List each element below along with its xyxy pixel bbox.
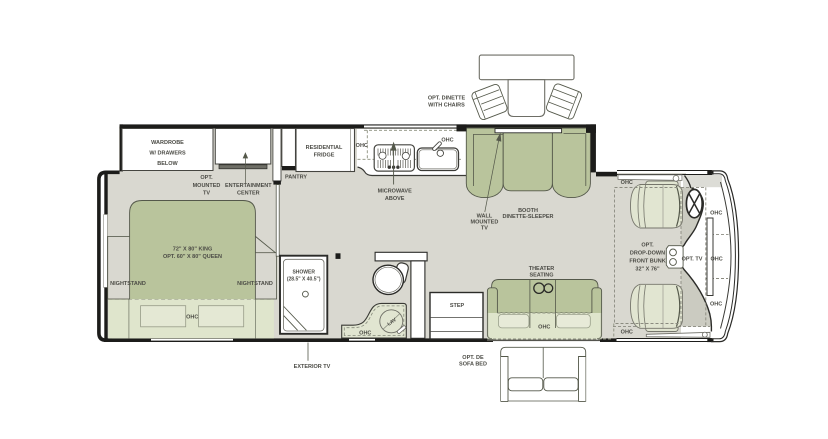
svg-text:72" X 80" KING: 72" X 80" KING <box>173 247 212 253</box>
svg-text:ENTERTAINMENT: ENTERTAINMENT <box>225 183 272 189</box>
svg-text:OPT. 60" X 80" QUEEN: OPT. 60" X 80" QUEEN <box>163 254 222 260</box>
svg-text:OHC: OHC <box>186 314 198 320</box>
svg-text:PANTRY: PANTRY <box>285 174 307 180</box>
svg-text:OHC: OHC <box>710 256 722 262</box>
svg-text:OHC: OHC <box>621 180 633 186</box>
svg-text:WITH CHAIRS: WITH CHAIRS <box>428 102 465 108</box>
svg-text:SOFA BED: SOFA BED <box>459 362 487 368</box>
svg-text:OHC: OHC <box>359 331 371 337</box>
svg-text:WARDROBE: WARDROBE <box>151 140 184 146</box>
svg-text:OHC: OHC <box>710 302 722 308</box>
svg-text:CENTER: CENTER <box>237 191 260 197</box>
svg-text:OPT. TV: OPT. TV <box>682 256 703 262</box>
svg-text:DROP-DOWN: DROP-DOWN <box>630 250 665 256</box>
svg-text:STEP: STEP <box>450 303 465 309</box>
svg-text:OHC: OHC <box>538 325 550 331</box>
svg-text:MOUNTED: MOUNTED <box>193 183 221 189</box>
svg-text:OPT.: OPT. <box>641 242 654 248</box>
svg-text:OPT.: OPT. <box>200 175 213 181</box>
svg-text:NIGHTSTAND: NIGHTSTAND <box>110 281 146 287</box>
svg-text:TV: TV <box>481 225 488 231</box>
svg-text:SEATING: SEATING <box>529 272 553 278</box>
svg-text:OHC: OHC <box>356 143 368 149</box>
svg-text:OPT. DE: OPT. DE <box>462 355 484 361</box>
svg-text:SHOWER: SHOWER <box>292 269 315 275</box>
svg-text:OHC: OHC <box>441 138 453 144</box>
svg-text:FRONT BUNK: FRONT BUNK <box>629 258 665 264</box>
svg-text:THEATER: THEATER <box>529 266 555 272</box>
svg-text:ABOVE: ABOVE <box>385 196 405 202</box>
svg-text:RESIDENTIAL: RESIDENTIAL <box>306 145 343 151</box>
svg-text:FRIDGE: FRIDGE <box>314 152 335 158</box>
svg-text:TV: TV <box>203 191 210 197</box>
svg-text:NIGHTSTAND: NIGHTSTAND <box>237 281 273 287</box>
svg-text:EXTERIOR TV: EXTERIOR TV <box>294 364 331 370</box>
svg-text:32" X 76": 32" X 76" <box>635 266 660 272</box>
svg-text:W/ DRAWERS: W/ DRAWERS <box>149 151 186 157</box>
svg-text:(28.5" X 40.5"): (28.5" X 40.5") <box>287 277 321 283</box>
svg-text:MICROWAVE: MICROWAVE <box>378 188 412 194</box>
svg-text:OPT. DINETTE: OPT. DINETTE <box>428 96 466 102</box>
svg-text:BELOW: BELOW <box>157 161 178 167</box>
svg-text:OHC: OHC <box>621 330 633 336</box>
svg-text:DINETTE-SLEEPER: DINETTE-SLEEPER <box>502 214 553 220</box>
svg-text:OHC: OHC <box>710 211 722 217</box>
